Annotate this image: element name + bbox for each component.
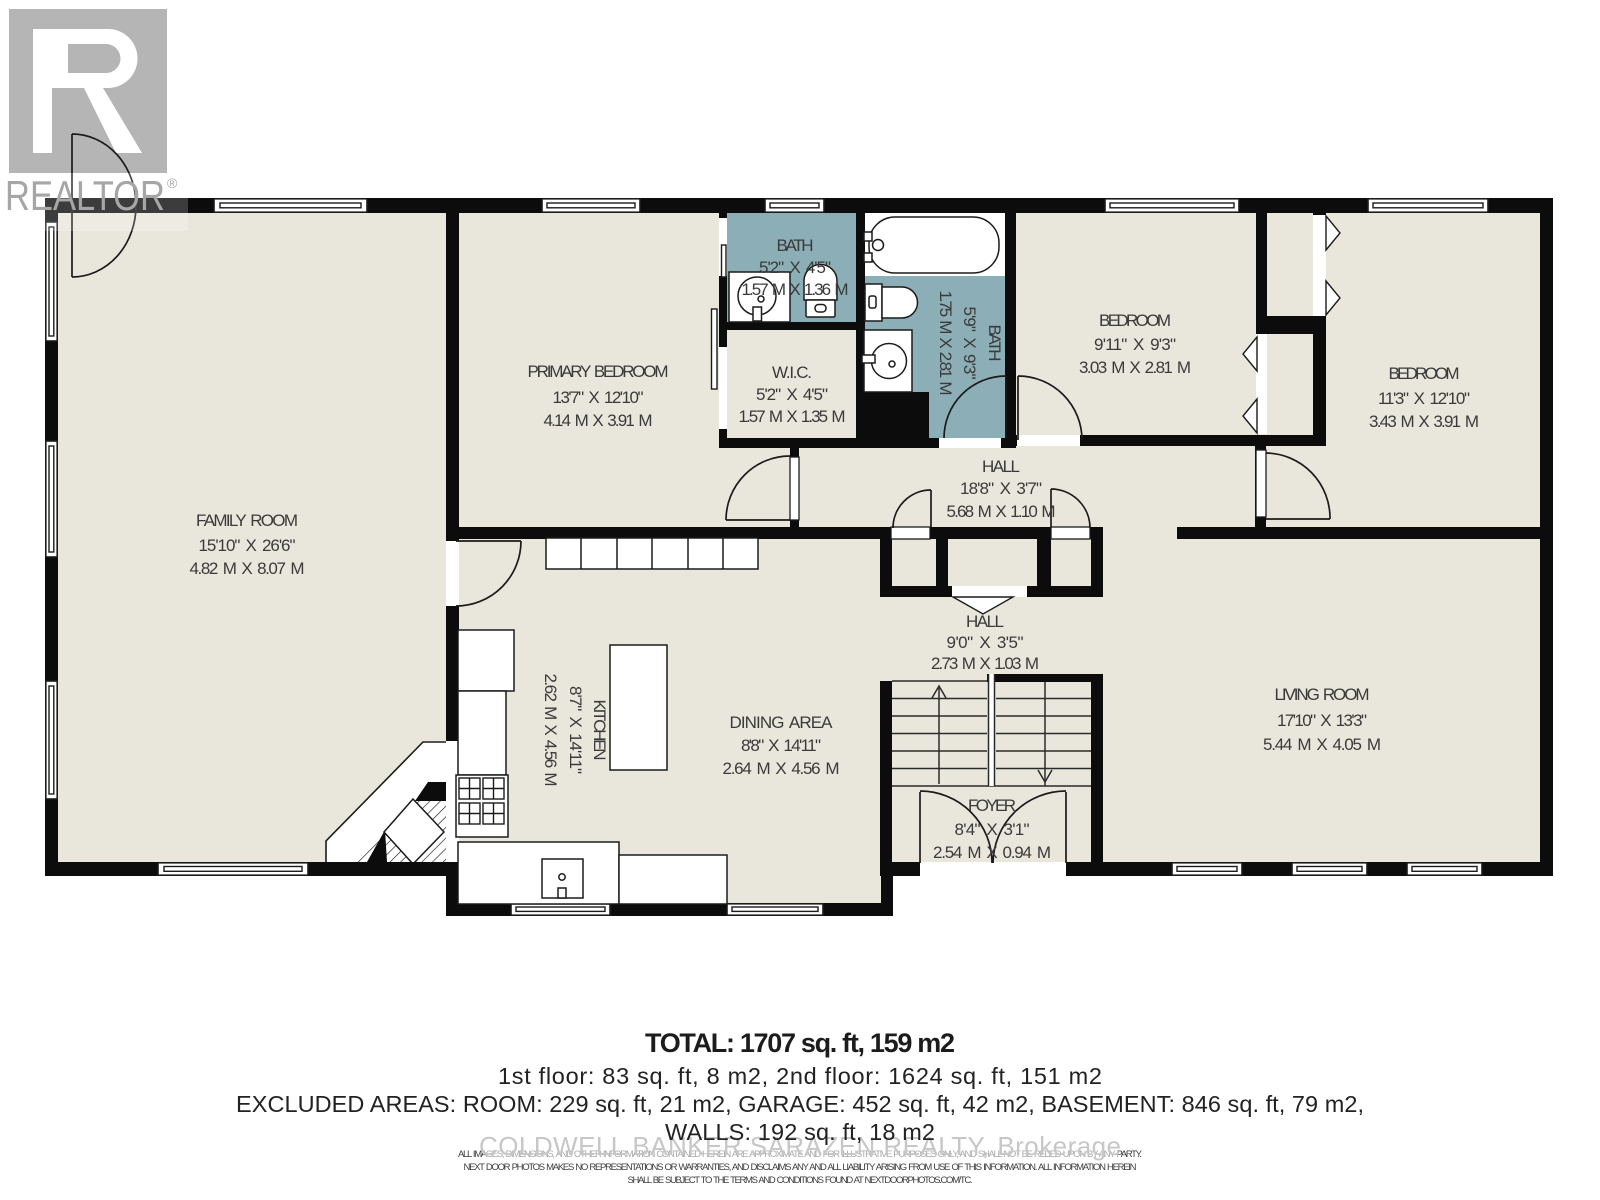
svg-text:LIVING ROOM: LIVING ROOM <box>1275 685 1370 704</box>
svg-text:1.57 M X 1.35 M: 1.57 M X 1.35 M <box>739 407 846 426</box>
svg-text:9'11" X 9'3": 9'11" X 9'3" <box>1094 335 1176 354</box>
svg-text:5'2" X 4'5": 5'2" X 4'5" <box>756 385 828 404</box>
svg-text:1.75 M X 2.81 M: 1.75 M X 2.81 M <box>936 291 955 396</box>
svg-text:18'8" X 3'7": 18'8" X 3'7" <box>960 479 1042 498</box>
svg-text:15'10" X 26'6": 15'10" X 26'6" <box>199 536 296 555</box>
svg-text:FOYER: FOYER <box>968 796 1016 815</box>
svg-text:KITCHEN: KITCHEN <box>590 700 609 761</box>
svg-text:BEDROOM: BEDROOM <box>1099 311 1171 330</box>
svg-text:3.43 M X 3.91 M: 3.43 M X 3.91 M <box>1369 412 1479 431</box>
svg-text:5.68 M X 1.10 M: 5.68 M X 1.10 M <box>947 502 1056 521</box>
svg-text:5.44 M X 4.05 M: 5.44 M X 4.05 M <box>1263 735 1381 754</box>
svg-text:17'10" X 13'3": 17'10" X 13'3" <box>1277 711 1367 730</box>
svg-text:NEXT DOOR PHOTOS MAKES NO REPR: NEXT DOOR PHOTOS MAKES NO REPRESENTATION… <box>463 1162 1136 1173</box>
svg-text:TOTAL: 1707 sq. ft, 159 m2: TOTAL: 1707 sq. ft, 159 m2 <box>645 1028 955 1058</box>
svg-text:8'7" X 14'11": 8'7" X 14'11" <box>566 686 585 774</box>
svg-text:PRIMARY BEDROOM: PRIMARY BEDROOM <box>528 362 669 381</box>
svg-text:®: ® <box>167 175 178 191</box>
svg-text:13'7" X 12'10": 13'7" X 12'10" <box>553 388 644 407</box>
svg-text:2.54 M X 0.94 M: 2.54 M X 0.94 M <box>933 843 1051 862</box>
svg-text:4.82 M X 8.07 M: 4.82 M X 8.07 M <box>190 559 305 578</box>
svg-text:1st floor: 83 sq. ft, 8 m2, 2n: 1st floor: 83 sq. ft, 8 m2, 2nd floor: 1… <box>498 1063 1102 1089</box>
svg-text:WALLS: 192 sq. ft, 18 m2: WALLS: 192 sq. ft, 18 m2 <box>665 1119 935 1145</box>
svg-text:HALL: HALL <box>982 457 1020 476</box>
svg-text:2.73 M X 1.03 M: 2.73 M X 1.03 M <box>931 654 1039 673</box>
svg-text:5'9" X 9'3": 5'9" X 9'3" <box>960 307 979 380</box>
svg-text:8'4" X 3'1": 8'4" X 3'1" <box>955 820 1030 839</box>
svg-text:DINING AREA: DINING AREA <box>730 713 834 732</box>
svg-text:1.57 M X 1.36 M: 1.57 M X 1.36 M <box>742 280 849 299</box>
svg-text:FAMILY ROOM: FAMILY ROOM <box>196 511 298 530</box>
svg-text:2.64 M X 4.56 M: 2.64 M X 4.56 M <box>723 759 840 778</box>
svg-text:8'8" X 14'11": 8'8" X 14'11" <box>741 736 821 755</box>
svg-text:BATH: BATH <box>985 325 1004 362</box>
svg-text:5'2" X 4'5": 5'2" X 4'5" <box>759 258 831 277</box>
svg-text:9'0" X 3'5": 9'0" X 3'5" <box>947 633 1024 652</box>
svg-text:HALL: HALL <box>966 612 1004 631</box>
svg-text:REALTOR: REALTOR <box>5 172 165 219</box>
svg-text:4.14 M X 3.91 M: 4.14 M X 3.91 M <box>544 411 653 430</box>
svg-text:BATH: BATH <box>777 236 814 255</box>
svg-text:BEDROOM: BEDROOM <box>1389 364 1460 383</box>
svg-text:EXCLUDED AREAS: ROOM: 229 sq.: EXCLUDED AREAS: ROOM: 229 sq. ft, 21 m2,… <box>236 1091 1364 1117</box>
svg-text:SHALL BE SUBJECT TO THE TERMS: SHALL BE SUBJECT TO THE TERMS AND CONDIT… <box>628 1175 973 1186</box>
svg-text:2.62 M X 4.56 M: 2.62 M X 4.56 M <box>541 674 560 787</box>
svg-text:11'3" X 12'10": 11'3" X 12'10" <box>1378 389 1470 408</box>
svg-text:W.I.C.: W.I.C. <box>772 363 812 382</box>
svg-text:3.03 M X 2.81 M: 3.03 M X 2.81 M <box>1079 358 1191 377</box>
